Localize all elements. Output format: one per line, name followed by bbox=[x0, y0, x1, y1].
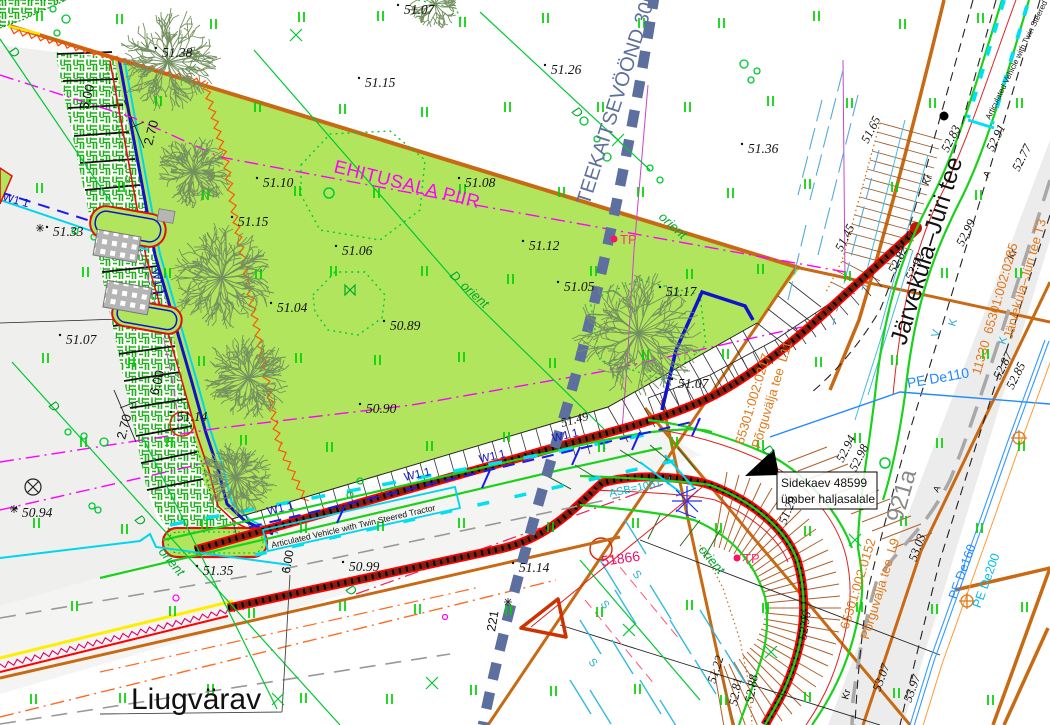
svg-text:51.38: 51.38 bbox=[162, 45, 193, 60]
svg-text:50.90: 50.90 bbox=[366, 401, 397, 416]
svg-text:51.17: 51.17 bbox=[666, 284, 698, 299]
svg-text:TP: TP bbox=[743, 551, 760, 566]
svg-text:Liugvärav: Liugvärav bbox=[131, 683, 261, 716]
svg-text:51.14: 51.14 bbox=[519, 560, 550, 575]
svg-text:ümber haljasalale: ümber haljasalale bbox=[781, 492, 875, 506]
svg-text:51.06: 51.06 bbox=[342, 243, 373, 258]
svg-text:50.94: 50.94 bbox=[22, 505, 53, 520]
svg-text:51.04: 51.04 bbox=[277, 300, 308, 315]
svg-text:51.26: 51.26 bbox=[551, 62, 582, 77]
svg-text:51.12: 51.12 bbox=[529, 238, 560, 253]
svg-text:51.15: 51.15 bbox=[238, 214, 269, 229]
svg-text:51.10: 51.10 bbox=[263, 175, 294, 190]
svg-text:TP: TP bbox=[620, 232, 637, 247]
svg-text:51.35: 51.35 bbox=[203, 563, 234, 578]
svg-text:51.14: 51.14 bbox=[177, 409, 208, 424]
svg-text:51.33: 51.33 bbox=[53, 224, 84, 239]
svg-text:51.36: 51.36 bbox=[748, 141, 779, 156]
svg-text:50.89: 50.89 bbox=[390, 318, 421, 333]
svg-text:51.15: 51.15 bbox=[365, 75, 396, 90]
svg-text:51.07: 51.07 bbox=[66, 332, 98, 347]
svg-text:51.07: 51.07 bbox=[404, 2, 436, 17]
svg-text:51.07: 51.07 bbox=[678, 376, 710, 391]
svg-text:Sidekaev 48599: Sidekaev 48599 bbox=[781, 476, 867, 490]
svg-text:51.05: 51.05 bbox=[564, 279, 595, 294]
svg-text:50.99: 50.99 bbox=[349, 559, 380, 574]
